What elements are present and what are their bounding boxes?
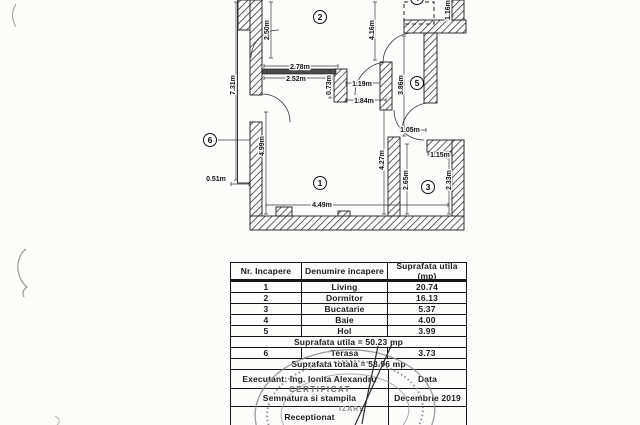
scan-mark — [13, 4, 17, 27]
dim-label: 2.78m — [290, 64, 310, 71]
table-row: 4 Baie 4.00 — [231, 314, 466, 325]
room-number: 6 — [208, 135, 213, 145]
receptionat-row: Receptionat — [231, 406, 466, 425]
dim-label: 2.52m — [286, 76, 306, 83]
room-nr-cell: 3 — [231, 304, 301, 314]
room-nr-cell: 5 — [231, 326, 301, 336]
semnatura-row: Semnatura si stampila Decembrie 2019 — [231, 388, 466, 406]
dim-label: 2.50m — [264, 20, 271, 40]
room-name-cell: Living — [301, 282, 387, 292]
wall-segment — [380, 62, 392, 110]
header-denumire-incapere: Denumire incapere — [301, 263, 387, 279]
scanned-document-page: 2.50m 7.31m 4.99m 0.51m 2.78m 2.52m 0.73… — [0, 0, 640, 425]
room-area-cell: 5.37 — [387, 304, 466, 314]
area-table: Nr. Incapere Denumire incapere Suprafata… — [230, 262, 467, 425]
walls — [238, 0, 466, 230]
room-area-cell: 16.13 — [387, 293, 466, 303]
dim-label: 3.86m — [398, 75, 405, 95]
wall-segment — [238, 0, 251, 30]
dim-label: 7.31m — [230, 75, 237, 95]
wall-segment — [404, 20, 466, 33]
total-row: Suprafata totala = 53.96 mp — [231, 358, 466, 369]
receptionat-cell: Receptionat — [231, 407, 388, 425]
room-marker-3: 3 — [422, 181, 435, 194]
scan-mark — [55, 416, 59, 425]
header-suprafata-utila: Suprafata utila (mp) — [387, 263, 466, 279]
dim-label: 4.27m — [379, 150, 386, 170]
data-header-cell: Data — [388, 370, 466, 388]
room-marker-4: 4 — [411, 0, 424, 5]
dim-label: 2.33m — [446, 170, 453, 190]
table-row: 2 Dormitor 16.13 — [231, 292, 466, 303]
semnatura-cell: Semnatura si stampila — [231, 389, 388, 406]
table-row: 1 Living 20.74 — [231, 281, 466, 292]
room-marker-2: 2 — [314, 11, 327, 24]
subtotal-label: Suprafata utila = 50.23 mp — [294, 337, 403, 347]
dim-label: 1.19m — [352, 81, 372, 88]
paper-artifacts — [13, 4, 60, 425]
room-name-cell: Bucatarie — [301, 304, 387, 314]
dim-label: 1.05m — [400, 127, 420, 134]
room-number: 3 — [426, 182, 431, 192]
room-number: 4 — [415, 0, 420, 3]
dim-label: 1.16m — [445, 0, 452, 20]
table-row: 5 Hol 3.99 — [231, 325, 466, 336]
room-area-cell: 4.00 — [387, 315, 466, 325]
room-number: 5 — [415, 78, 420, 88]
dim-label: 0.51m — [206, 176, 226, 183]
header-nr-incapere: Nr. Incapere — [231, 263, 301, 279]
executant-cell: Executant: Ing. Ionita Alexandru — [231, 370, 388, 388]
dim-label: 0.73m — [326, 75, 333, 95]
empty-cell — [388, 407, 466, 425]
room-number: 2 — [318, 12, 323, 22]
wall-segment — [452, 140, 464, 216]
wall-segment — [338, 211, 350, 216]
wall-segment — [250, 0, 262, 95]
room-number: 1 — [318, 178, 323, 188]
room-nr-cell: 2 — [231, 293, 301, 303]
dim-label: 1.84m — [354, 98, 374, 105]
dim-label: 4.49m — [312, 202, 332, 209]
total-label: Suprafata totala = 53.96 mp — [291, 359, 405, 369]
dim-label: 1.15m — [430, 152, 450, 159]
data-value-cell: Decembrie 2019 — [388, 389, 466, 406]
room-name-cell: Baie — [301, 315, 387, 325]
door-arc — [394, 110, 424, 140]
room-nr-cell: 4 — [231, 315, 301, 325]
executant-row: Executant: Ing. Ionita Alexandru Data — [231, 369, 466, 388]
door-arc — [383, 33, 413, 63]
room-area-cell: 3.73 — [387, 348, 466, 358]
room-marker-6: 6 — [204, 134, 217, 147]
wall-segment — [388, 137, 400, 216]
room-area-cell: 20.74 — [387, 282, 466, 292]
room-nr-cell: 6 — [231, 348, 301, 358]
room-name-cell: Terasa — [301, 348, 387, 358]
room-nr-cell: 1 — [231, 282, 301, 292]
wall-segment — [424, 33, 437, 103]
room-name-cell: Dormitor — [301, 293, 387, 303]
room-marker-5: 5 — [411, 77, 424, 90]
scan-mark — [18, 249, 27, 297]
wall-segment — [250, 216, 464, 230]
table-header-row: Nr. Incapere Denumire incapere Suprafata… — [231, 263, 466, 281]
wall-segment — [452, 0, 464, 20]
room-marker-1: 1 — [314, 177, 327, 190]
terasa-row: 6 Terasa 3.73 — [231, 347, 466, 358]
wall-segment — [276, 207, 292, 216]
subtotal-row: Suprafata utila = 50.23 mp — [231, 336, 466, 347]
dim-label: 4.16m — [369, 20, 376, 40]
room-name-cell: Hol — [301, 326, 387, 336]
dim-label: 4.99m — [259, 136, 266, 156]
dim-label: 2.65m — [403, 170, 410, 190]
room-area-cell: 3.99 — [387, 326, 466, 336]
table-row: 3 Bucatarie 5.37 — [231, 303, 466, 314]
